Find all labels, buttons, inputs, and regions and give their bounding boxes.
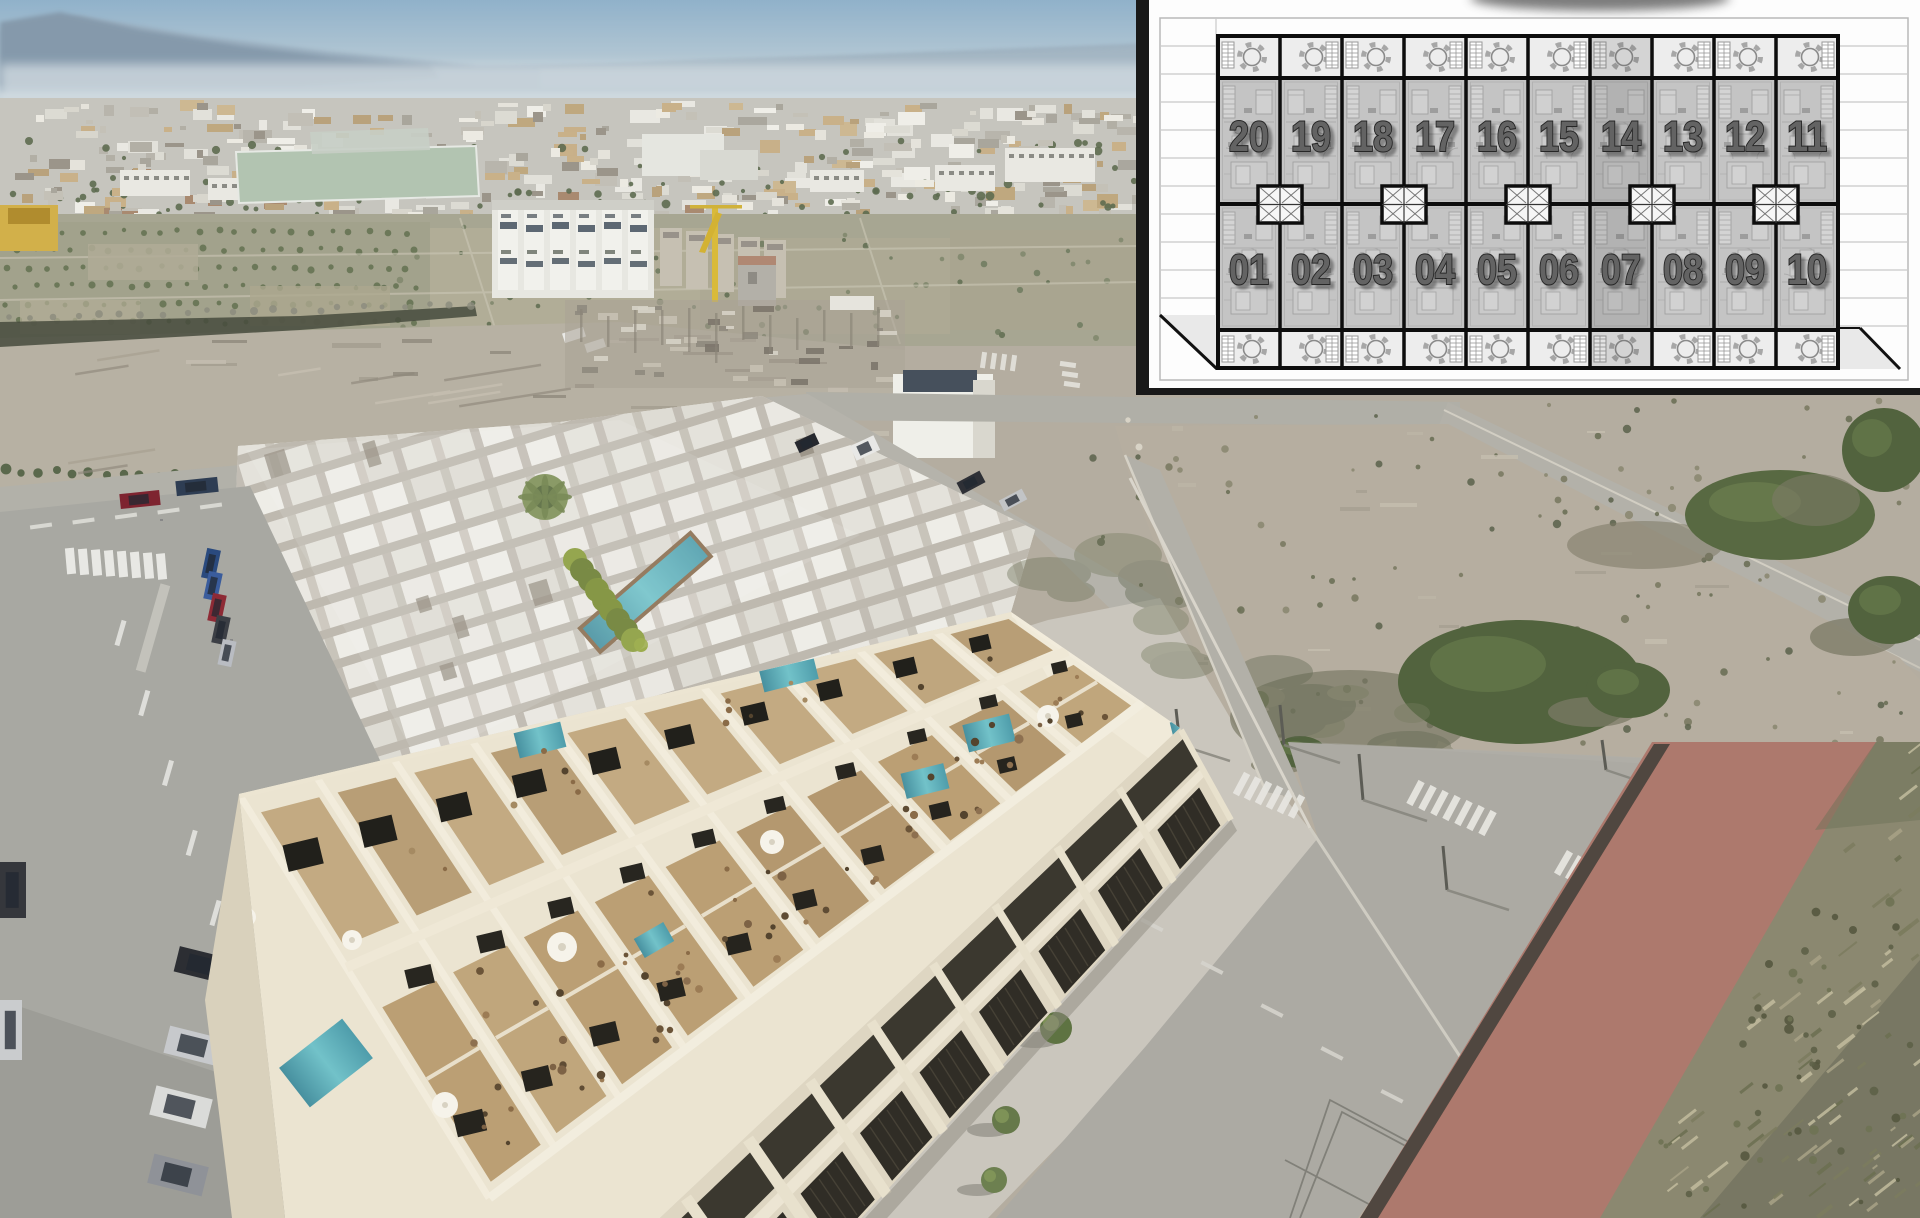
- svg-text:17: 17: [1415, 113, 1455, 161]
- svg-text:04: 04: [1415, 246, 1455, 294]
- svg-text:03: 03: [1353, 246, 1393, 294]
- svg-text:02: 02: [1291, 246, 1331, 294]
- svg-text:05: 05: [1477, 246, 1517, 294]
- svg-text:06: 06: [1539, 246, 1579, 294]
- svg-text:08: 08: [1663, 246, 1703, 294]
- svg-text:15: 15: [1539, 113, 1579, 161]
- svg-text:10: 10: [1787, 246, 1827, 294]
- svg-text:16: 16: [1477, 113, 1517, 161]
- svg-text:07: 07: [1601, 246, 1641, 294]
- svg-text:20: 20: [1229, 113, 1269, 161]
- svg-text:18: 18: [1353, 113, 1393, 161]
- svg-text:09: 09: [1725, 246, 1765, 294]
- svg-text:01: 01: [1229, 246, 1269, 294]
- svg-text:11: 11: [1787, 113, 1827, 161]
- svg-text:13: 13: [1663, 113, 1703, 161]
- svg-text:19: 19: [1291, 113, 1331, 161]
- svg-text:12: 12: [1725, 113, 1765, 161]
- svg-text:14: 14: [1601, 113, 1641, 161]
